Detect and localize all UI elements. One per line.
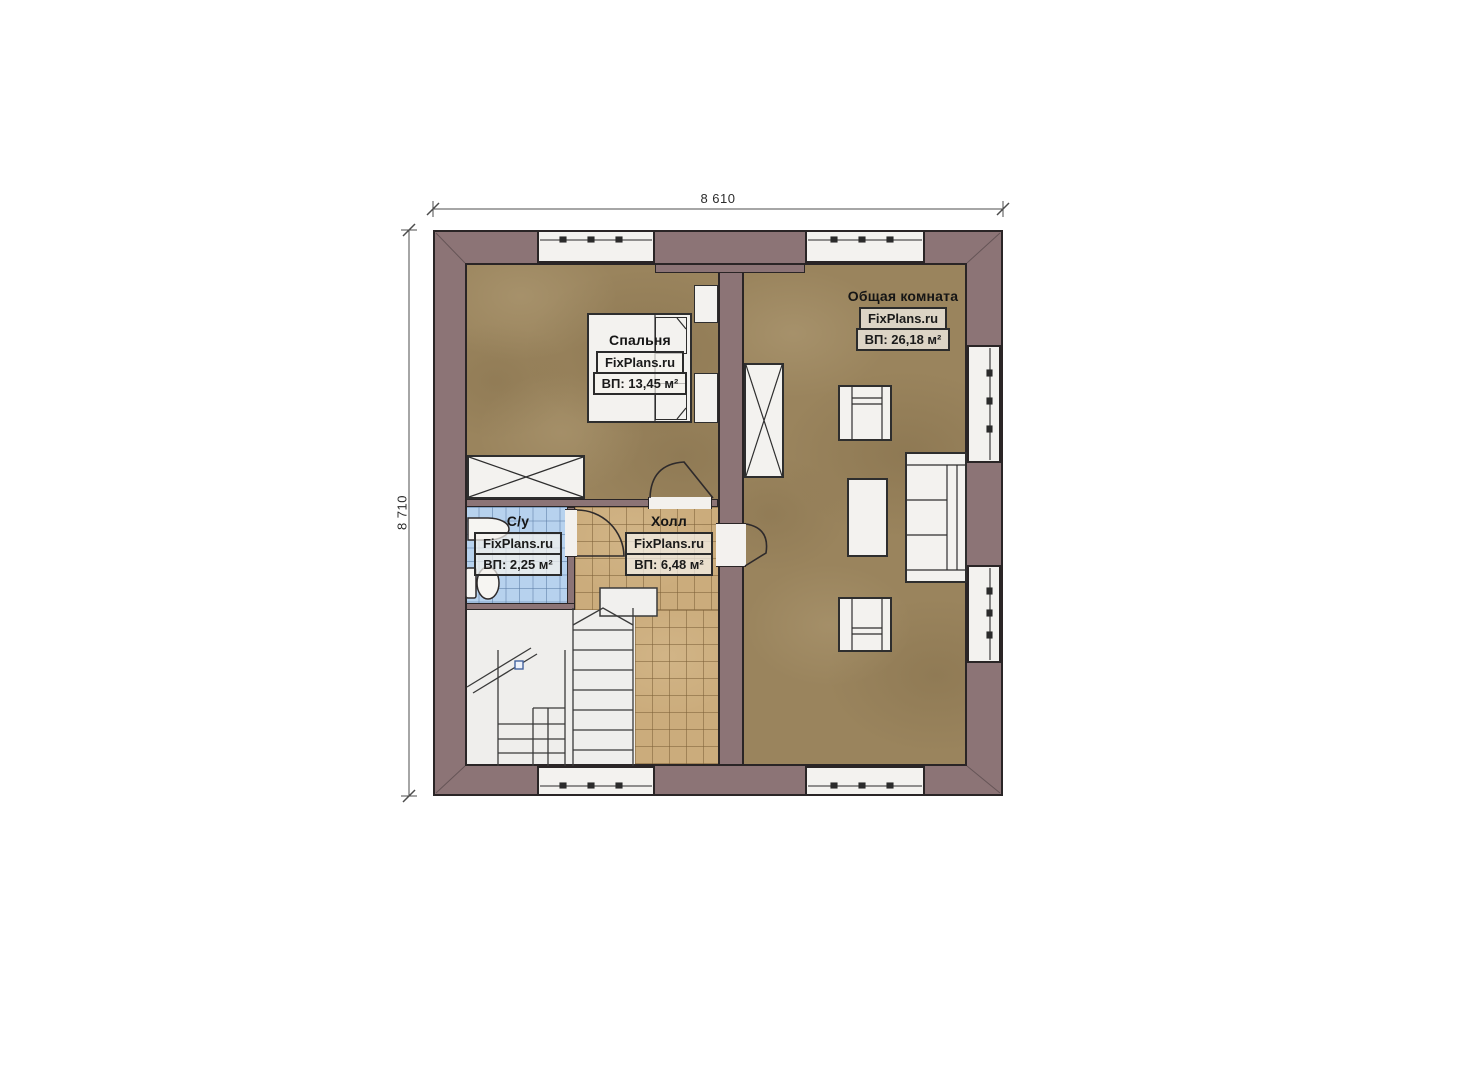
living-room-label: Общая комната FixPlans.ru ВП: 26,18 м²	[833, 288, 973, 351]
bathroom-brand: FixPlans.ru	[474, 532, 562, 555]
bedroom-door-opening	[648, 497, 712, 509]
floor-plan-canvas: Спальня FixPlans.ru ВП: 13,45 м² Общая к…	[0, 0, 1473, 1080]
living-room-area: ВП: 26,18 м²	[856, 328, 951, 351]
bedroom-brand: FixPlans.ru	[596, 351, 684, 374]
sofa	[905, 452, 967, 583]
bedroom-area: ВП: 13,45 м²	[593, 372, 688, 395]
hall-label: Холл FixPlans.ru ВП: 6,48 м²	[610, 513, 728, 576]
hall-brand: FixPlans.ru	[625, 532, 713, 555]
hall-area: ВП: 6,48 м²	[625, 553, 713, 576]
bedroom-name: Спальня	[609, 332, 671, 348]
coffee-table	[847, 478, 888, 557]
wardrobe-bedroom	[467, 455, 585, 499]
window-bottom-left	[537, 766, 655, 796]
dimension-height-label: 8 710	[395, 483, 410, 543]
window-top-right	[805, 230, 925, 263]
armchair-top	[838, 385, 892, 441]
nightstand-top	[694, 285, 718, 323]
armchair-bottom	[838, 597, 892, 652]
bedroom-label: Спальня FixPlans.ru ВП: 13,45 м²	[580, 332, 700, 395]
window-top-left	[537, 230, 655, 263]
living-room-name: Общая комната	[848, 288, 958, 304]
hall-name: Холл	[651, 513, 687, 529]
bathroom-name: С/у	[507, 513, 529, 529]
cabinet-living	[744, 363, 784, 478]
living-room-brand: FixPlans.ru	[859, 307, 947, 330]
bathroom-area: ВП: 2,25 м²	[474, 553, 562, 576]
window-right-lower	[967, 565, 1001, 663]
bathroom-label: С/у FixPlans.ru ВП: 2,25 м²	[462, 513, 574, 576]
window-bottom-right	[805, 766, 925, 796]
window-right-upper	[967, 345, 1001, 463]
dimension-width-label: 8 610	[688, 191, 748, 206]
